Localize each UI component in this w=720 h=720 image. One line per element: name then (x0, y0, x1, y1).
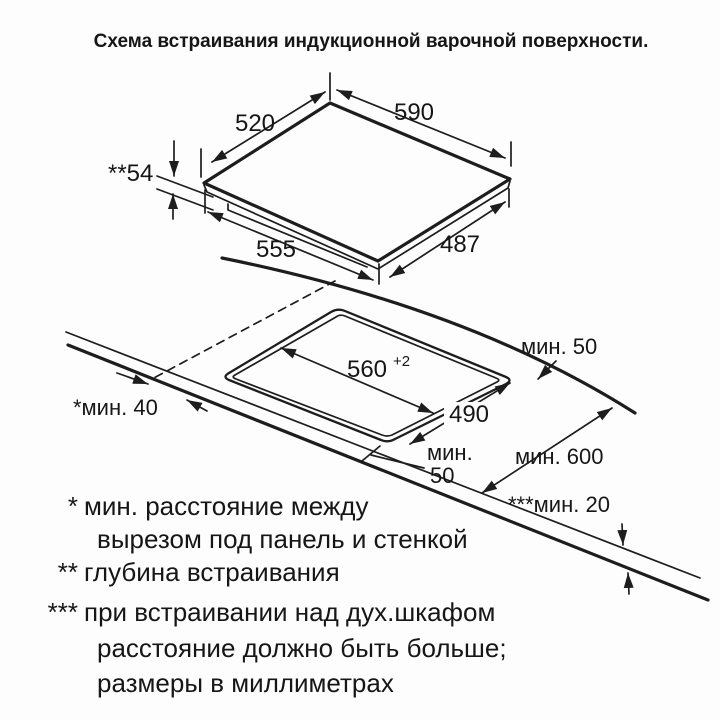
footnote-1-marker: * (68, 491, 78, 521)
footnote-3-line3: размеры в миллиметрах (97, 668, 394, 698)
dim-label-590: 590 (394, 99, 434, 126)
bottom-clearance-arrow-up (628, 573, 629, 594)
dim-label-embed-depth-54: **54 (108, 160, 153, 187)
footnote-3-marker: *** (48, 597, 78, 627)
dim-label-490: 490 (449, 401, 489, 428)
dim-label-520: 520 (235, 110, 275, 137)
dim-label-555: 555 (256, 236, 296, 263)
side-clearance-arrow-lower (187, 400, 207, 411)
bottom-clearance-arrow-down (622, 524, 623, 545)
diagram-canvas: Схема встраивания индукционной варочной … (0, 0, 720, 720)
footnote-3-line1: при встраивании над дух.шкафом (84, 597, 495, 627)
footnotes: * мин. расстояние между вырезом под пане… (48, 491, 507, 698)
label-bottom-clearance: ***мин. 20 (508, 492, 610, 517)
dim-label-560: 560 (347, 356, 387, 383)
page-title: Схема встраивания индукционной варочной … (94, 31, 649, 52)
dim-label-560-tolerance: +2 (393, 353, 410, 370)
cooktop-body-lower-edge (228, 204, 367, 267)
footnote-3-line2: расстояние должно быть больше; (97, 633, 507, 663)
label-countertop-depth: мин. 600 (515, 444, 604, 469)
front-clearance-leader (371, 455, 424, 468)
label-back-clearance: мин. 50 (521, 334, 597, 359)
footnote-1-line1: мин. расстояние между (84, 491, 368, 521)
label-side-clearance: *мин. 40 (73, 395, 158, 420)
footnote-1-line2: вырезом под панель и стенкой (97, 524, 468, 554)
cooktop-drawing: 520 590 555 487 **54 (108, 73, 511, 284)
footnote-2-line1: глубина встраивания (84, 557, 340, 587)
label-front-clearance-line1: мин. (427, 440, 473, 465)
dim-label-487: 487 (440, 231, 480, 258)
label-front-clearance-line2: 50 (430, 463, 454, 488)
installation-diagram-page: Схема встраивания индукционной варочной … (0, 0, 720, 720)
footnote-2-marker: ** (58, 557, 78, 587)
